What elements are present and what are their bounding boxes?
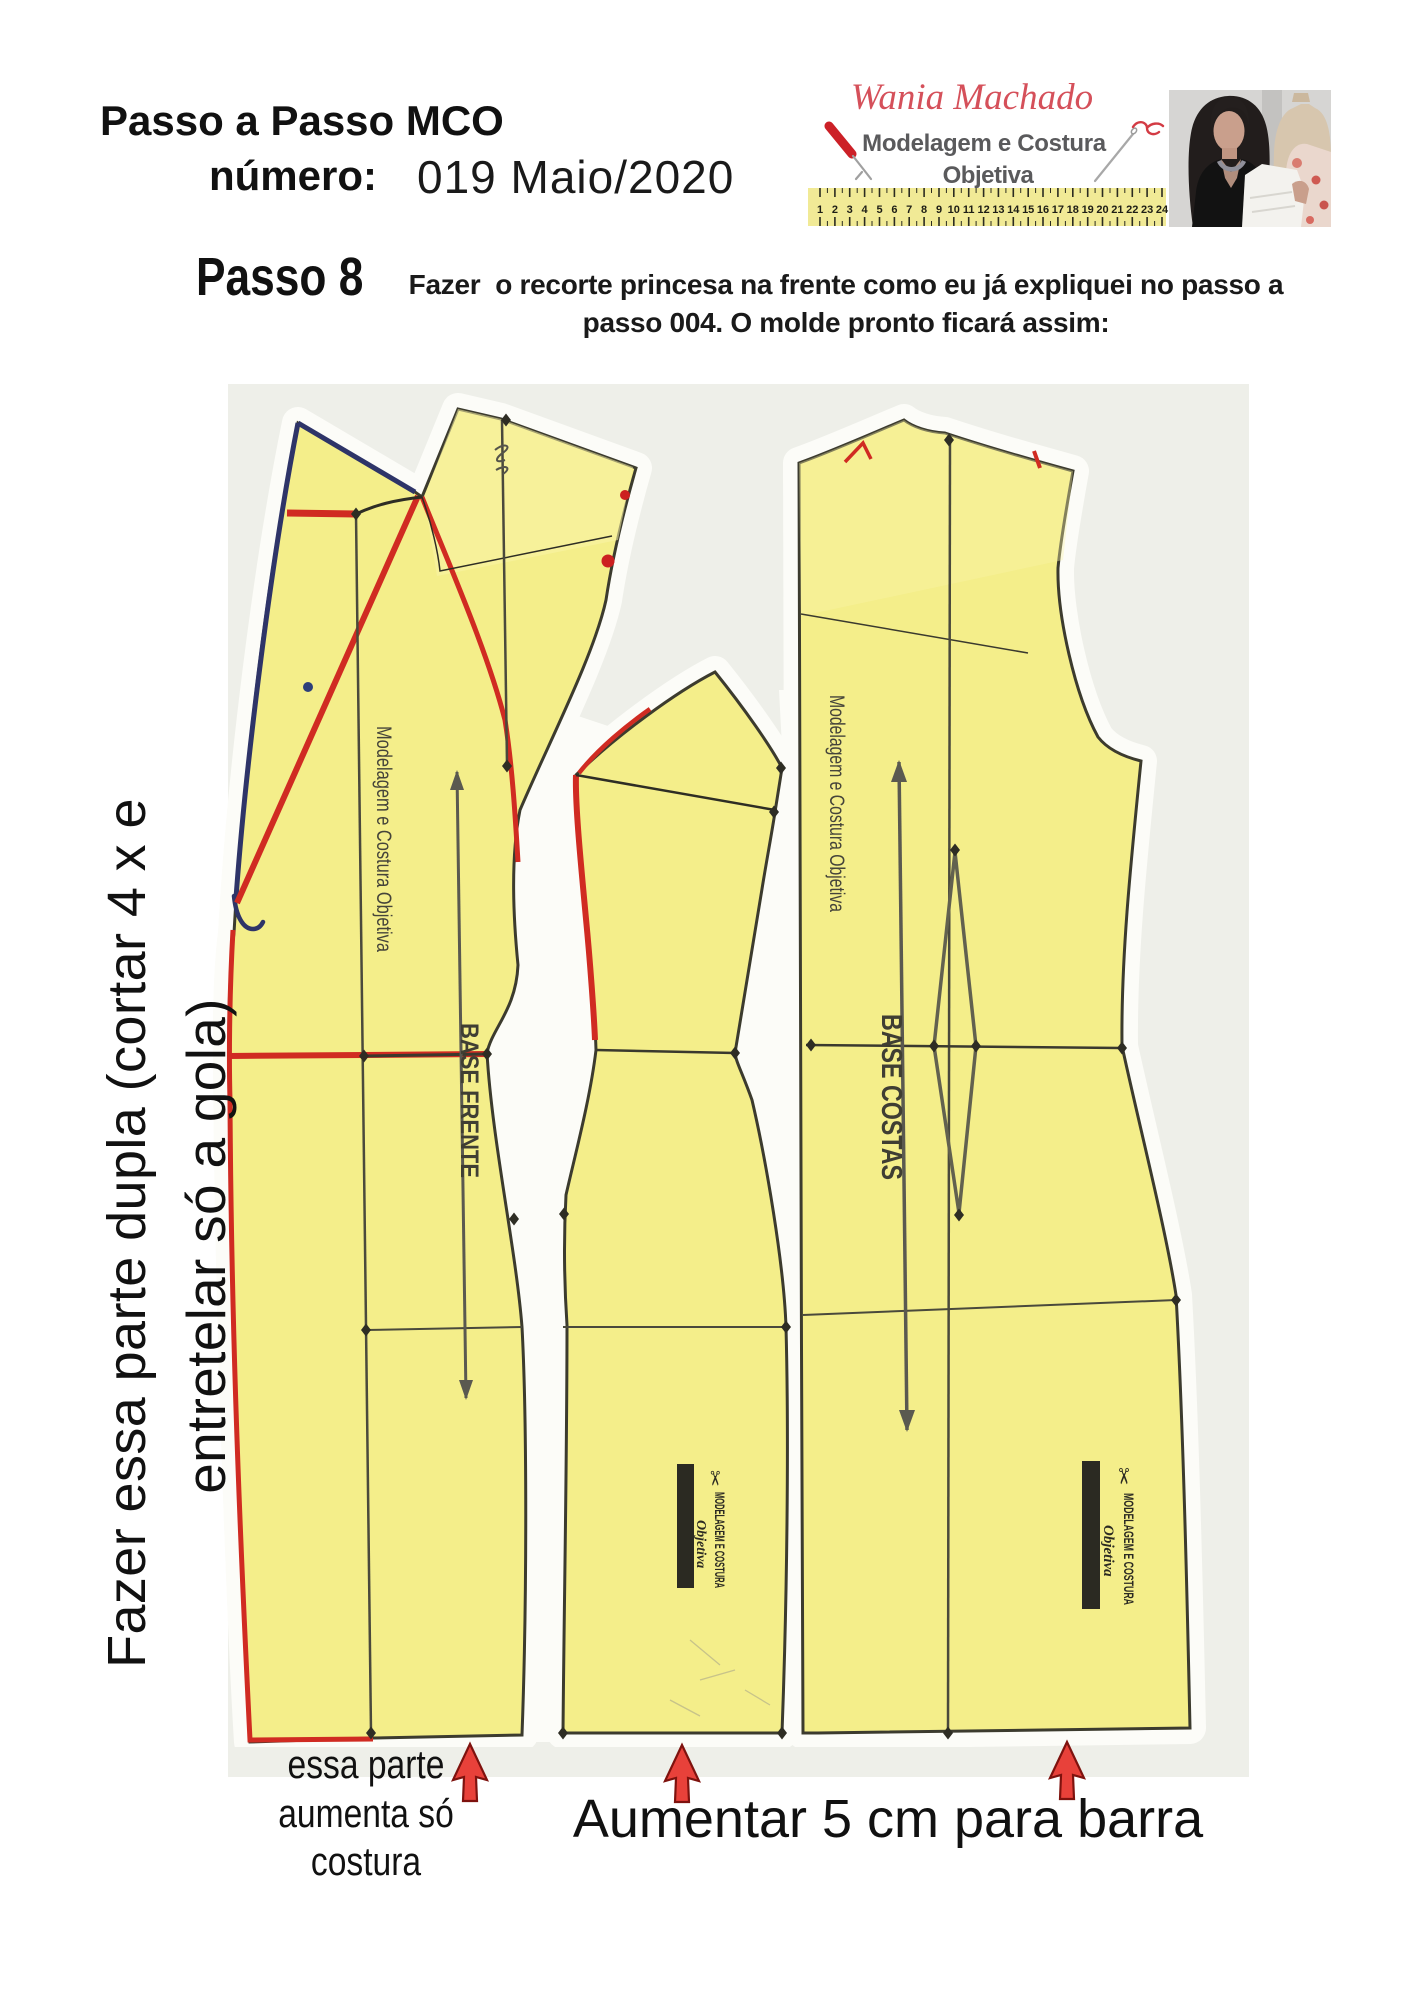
- svg-text:10: 10: [948, 204, 960, 216]
- svg-text:14: 14: [1007, 204, 1020, 216]
- svg-text:8: 8: [921, 204, 927, 216]
- svg-text:9: 9: [936, 204, 942, 216]
- svg-text:20: 20: [1096, 204, 1108, 216]
- svg-text:24: 24: [1156, 204, 1169, 216]
- svg-text:Objetiva: Objetiva: [693, 1520, 708, 1568]
- svg-text:13: 13: [992, 204, 1004, 216]
- svg-text:1: 1: [817, 204, 823, 216]
- svg-text:22: 22: [1126, 204, 1138, 216]
- svg-text:MODELAGEM E COSTURA: MODELAGEM E COSTURA: [1121, 1493, 1137, 1605]
- svg-text:23: 23: [1141, 204, 1153, 216]
- svg-text:11: 11: [963, 204, 975, 216]
- svg-text:Modelagem e Costura Objetiva: Modelagem e Costura Objetiva: [372, 726, 395, 952]
- svg-text:✂: ✂: [1111, 1467, 1136, 1485]
- svg-text:5: 5: [876, 204, 882, 216]
- svg-text:12: 12: [977, 204, 989, 216]
- svg-text:BASE FRENTE: BASE FRENTE: [455, 1023, 483, 1178]
- svg-text:BASE COSTAS: BASE COSTAS: [875, 1014, 907, 1180]
- svg-text:7: 7: [906, 204, 912, 216]
- svg-text:21: 21: [1111, 204, 1123, 216]
- svg-text:18: 18: [1067, 204, 1079, 216]
- svg-text:✂: ✂: [703, 1470, 725, 1487]
- svg-text:19: 19: [1082, 204, 1094, 216]
- svg-text:16: 16: [1037, 204, 1049, 216]
- svg-text:15: 15: [1022, 204, 1034, 216]
- svg-text:Modelagem e Costura Objetiva: Modelagem e Costura Objetiva: [825, 695, 848, 912]
- svg-text:2: 2: [832, 204, 838, 216]
- svg-text:Objetiva: Objetiva: [1100, 1525, 1116, 1577]
- svg-text:17: 17: [1052, 204, 1064, 216]
- svg-text:MODELAGEM E COSTURA: MODELAGEM E COSTURA: [712, 1492, 727, 1588]
- svg-text:3: 3: [847, 204, 853, 216]
- svg-text:6: 6: [891, 204, 897, 216]
- svg-text:4: 4: [862, 204, 869, 216]
